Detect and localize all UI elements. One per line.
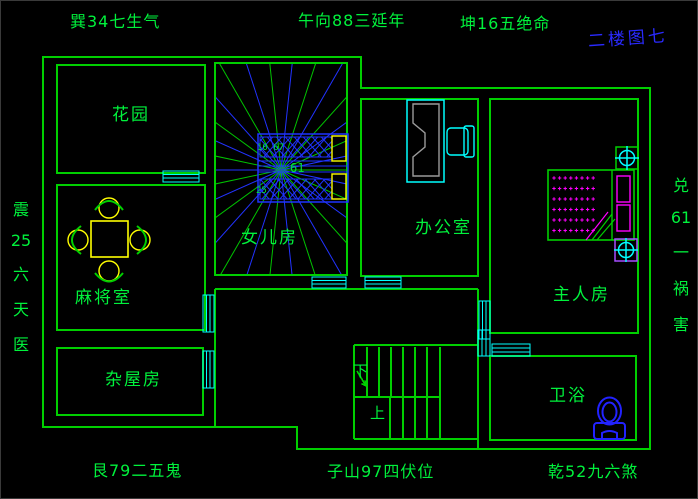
pillow-icon <box>617 176 630 202</box>
door-icon <box>478 330 490 356</box>
room-label-bath: 卫浴 <box>549 388 587 406</box>
mahjong-room <box>57 185 205 330</box>
pillow-icon <box>617 205 630 231</box>
vertical-char: 61 <box>671 208 691 227</box>
light-fixture-icon <box>614 238 638 262</box>
vertical-char: 兑 <box>673 172 689 196</box>
vertical-char: 天 <box>13 296 29 320</box>
room-label-mahjong: 麻将室 <box>75 290 132 308</box>
room-label-garden: 花园 <box>112 107 150 125</box>
stool-icons <box>68 198 150 281</box>
room-label-storage: 杂屋房 <box>105 372 162 390</box>
room-label-office: 办公室 <box>415 220 472 238</box>
room-label-master: 主人房 <box>553 287 610 305</box>
window-icon <box>492 344 530 356</box>
window-icon <box>365 277 401 288</box>
compass-number: 25 <box>256 186 267 196</box>
fengshui-label-right: 兑 61 一 祸 害 <box>666 172 696 335</box>
desk-icon <box>407 100 444 182</box>
stairs-icon <box>354 345 478 439</box>
mahjong-table-icon <box>68 198 150 282</box>
vertical-char: 医 <box>13 331 29 355</box>
fengshui-label-left: 震 25 六 天 医 <box>6 196 36 355</box>
vertical-char: 25 <box>11 231 31 250</box>
fengshui-label-bottom-right: 乾52九六煞 <box>548 464 638 481</box>
floorplan-drawing: 10 67 61 25 <box>0 0 698 499</box>
fengshui-label-top-right: 坤16五绝命 <box>460 16 550 33</box>
chair-icon <box>447 126 474 157</box>
room-label-daughter: 女儿房 <box>241 230 298 248</box>
fengshui-label-top-left: 巽34七生气 <box>70 14 160 31</box>
chair-back-arcs <box>72 201 146 282</box>
toilet-icon <box>594 398 625 440</box>
floorplan-canvas: 10 67 61 25 <box>0 0 698 499</box>
vertical-char: 六 <box>13 261 29 285</box>
fengshui-label-top-center: 午向88三延年 <box>298 13 405 30</box>
mattress-dots <box>552 176 595 232</box>
vertical-char: 祸 <box>673 275 689 299</box>
door-icon <box>479 301 490 339</box>
fengshui-label-bottom-center: 子山97四伏位 <box>327 464 434 481</box>
light-fixture-icon <box>615 146 639 170</box>
fengshui-label-bottom-left: 艮79二五鬼 <box>92 463 182 480</box>
vertical-char: 害 <box>673 311 689 335</box>
vertical-char: 震 <box>13 196 29 220</box>
stairs-down-label: 下 <box>353 364 368 380</box>
compass-number: 10 67 <box>257 143 284 153</box>
vertical-char: 一 <box>673 239 689 263</box>
office-room <box>361 99 478 276</box>
window-icon <box>312 277 346 288</box>
compass-number: 61 <box>290 161 304 175</box>
doors <box>203 295 490 388</box>
corridor-walls <box>215 289 478 449</box>
door-icon <box>203 351 214 388</box>
bed-icon <box>548 170 634 240</box>
stairs-up-label: 上 <box>370 406 385 422</box>
